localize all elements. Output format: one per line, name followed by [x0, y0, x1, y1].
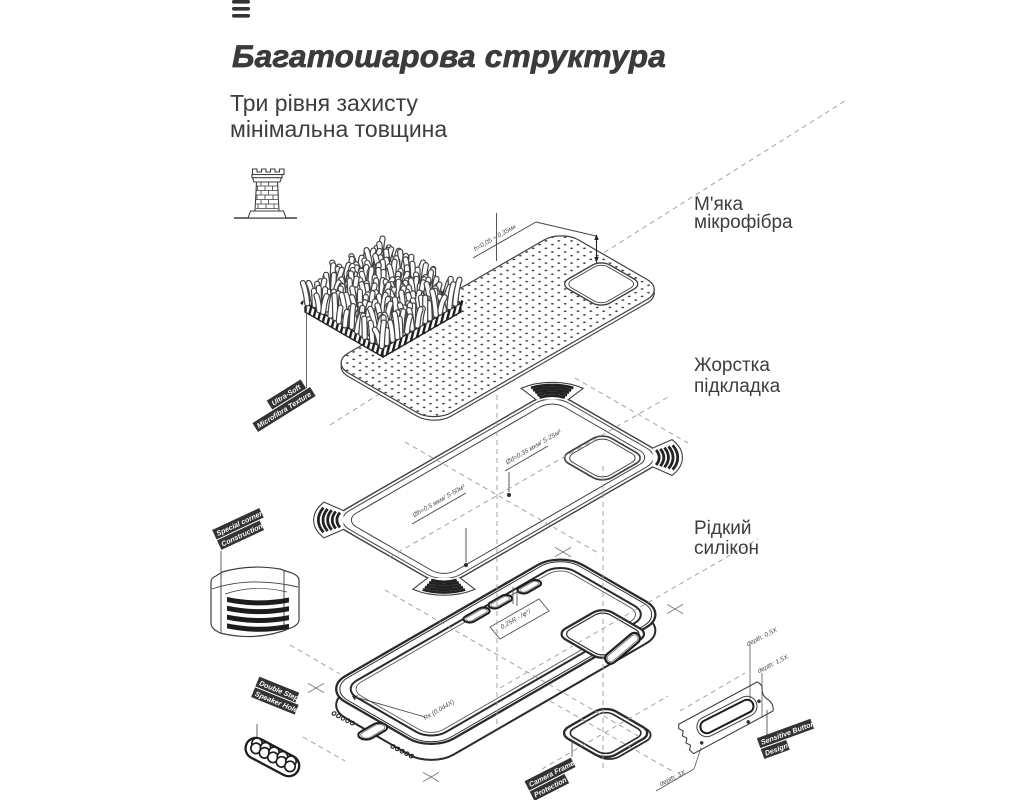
svg-text:підкладка: підкладка: [694, 376, 781, 397]
svg-text:Жорстка: Жорстка: [694, 355, 770, 376]
svg-text:мікрофібра: мікрофібра: [694, 212, 793, 233]
svg-text:Багатошарова структура: Багатошарова структура: [232, 38, 666, 74]
svg-text:depth: 1,5X: depth: 1,5X: [757, 653, 790, 675]
svg-text:h=0,05 ÷ 0,35мк: h=0,05 ÷ 0,35мк: [473, 223, 518, 253]
svg-text:силікон: силікон: [694, 538, 759, 559]
svg-text:Sensitive Button: Sensitive Button: [760, 719, 817, 747]
svg-text:Три рівня захисту: Три рівня захисту: [230, 90, 418, 116]
svg-text:depth: 3X: depth: 3X: [659, 769, 688, 788]
svg-text:Рідкий: Рідкий: [694, 518, 752, 539]
svg-text:depth: 0,5X: depth: 0,5X: [746, 626, 779, 648]
svg-text:мінімальна товщина: мінімальна товщина: [230, 116, 447, 142]
